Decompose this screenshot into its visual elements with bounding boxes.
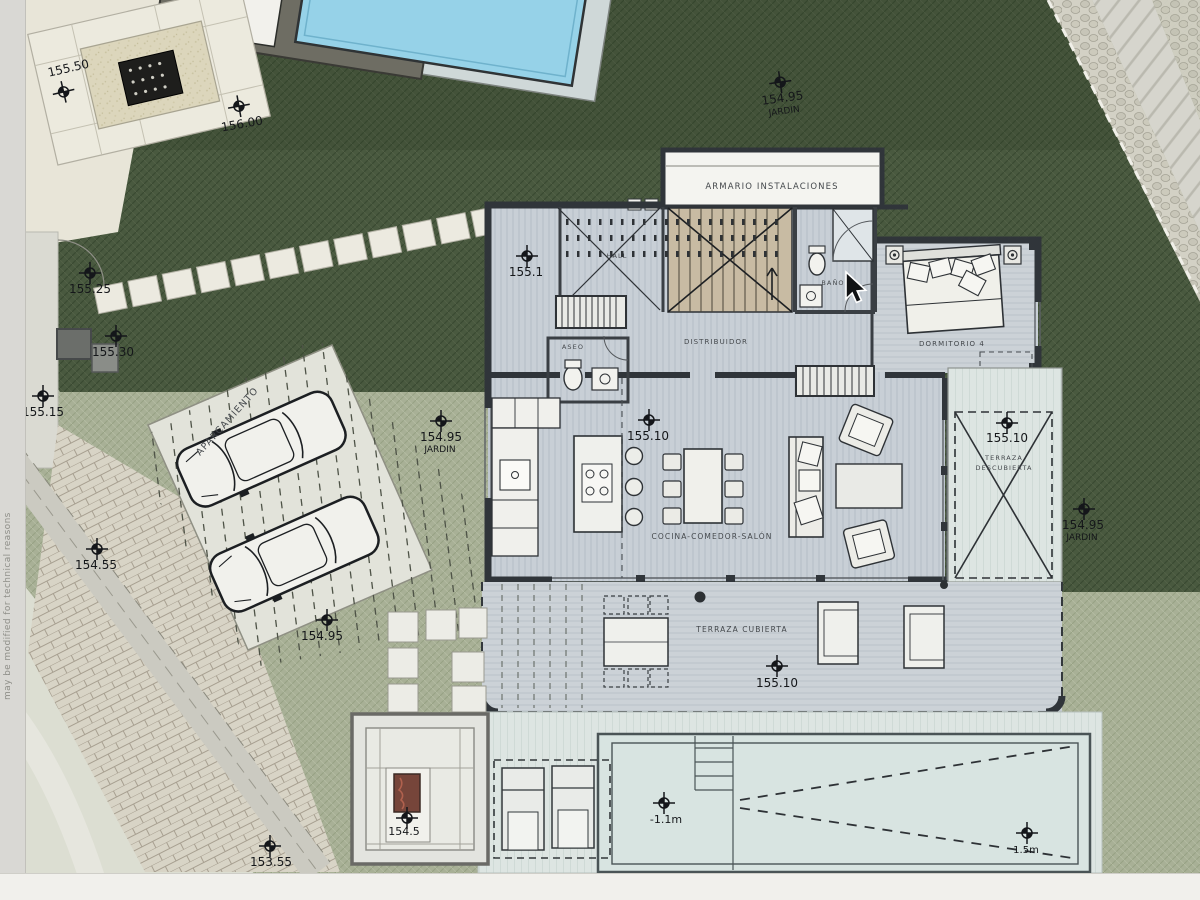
level-label: 155.30 (92, 345, 134, 359)
level-label: 155.15 (22, 405, 64, 419)
room-label-terraza-descubierta-1: TERRAZA (984, 454, 1023, 462)
level-label: 155.25 (69, 282, 111, 296)
coffee-table (836, 464, 902, 508)
level-sublabel: JARDIN (1065, 533, 1097, 543)
pool-area: -1.1m 1.5m (478, 712, 1102, 873)
level-label: 154.95 (301, 629, 343, 643)
terraza-cubierta: TERRAZA CUBIERTA 155.10 (482, 581, 1062, 712)
stool (626, 509, 643, 526)
level-label: 155.10 (986, 431, 1028, 445)
room-label-dormitorio4: DORMITORIO 4 (919, 340, 985, 348)
pool-depth-label: -1.1m (650, 813, 682, 826)
level-label: 155.10 (756, 676, 798, 690)
level-label: 155.10 (627, 429, 669, 443)
room-label-distribuidor: DISTRIBUIDOR (684, 338, 748, 346)
dining-set (663, 449, 743, 524)
fire-pit (394, 774, 420, 812)
watermark-text: may be modified for technical reasons (3, 430, 13, 700)
dining-table (684, 449, 722, 523)
room-label-terraza-descubierta-2: DESCUBIERTA (975, 464, 1032, 472)
scan-bottom-margin (0, 873, 1200, 900)
level-sublabel: JARDIN (423, 445, 455, 455)
pool-depth-label: 1.5m (1013, 845, 1039, 856)
room-label-aseo: ASEO (562, 343, 584, 351)
level-label: 155.1 (509, 265, 543, 279)
pool-loungers (494, 760, 610, 858)
room-label-terraza-cubierta: TERRAZA CUBIERTA (695, 625, 787, 634)
site-plan: 155.50 APARCAMIENTO ARMARIO INSTALACIONE… (0, 0, 1200, 900)
room-label-bano: BAÑO (821, 278, 844, 287)
column (695, 592, 706, 603)
level-label: 154.55 (75, 558, 117, 572)
stool (626, 448, 643, 465)
level-label: 153.55 (250, 855, 292, 869)
room-label-armario: ARMARIO INSTALACIONES (705, 182, 838, 192)
level-label: 154.95 (1062, 518, 1104, 532)
armario-box (663, 150, 882, 207)
column (940, 581, 948, 589)
level-label: 154.5 (388, 825, 420, 838)
room-label-hall: HALL (607, 252, 628, 260)
terraza-descubierta: 155.10 TERRAZA DESCUBIERTA (948, 368, 1062, 582)
room-label-salon: COCINA-COMEDOR-SALÓN (652, 532, 773, 541)
stool (626, 479, 643, 496)
gate-block (57, 329, 91, 359)
level-label: 154.95 (420, 430, 462, 444)
bed (900, 245, 1005, 334)
screenshot-root: 155.50 APARCAMIENTO ARMARIO INSTALACIONE… (0, 0, 1200, 900)
